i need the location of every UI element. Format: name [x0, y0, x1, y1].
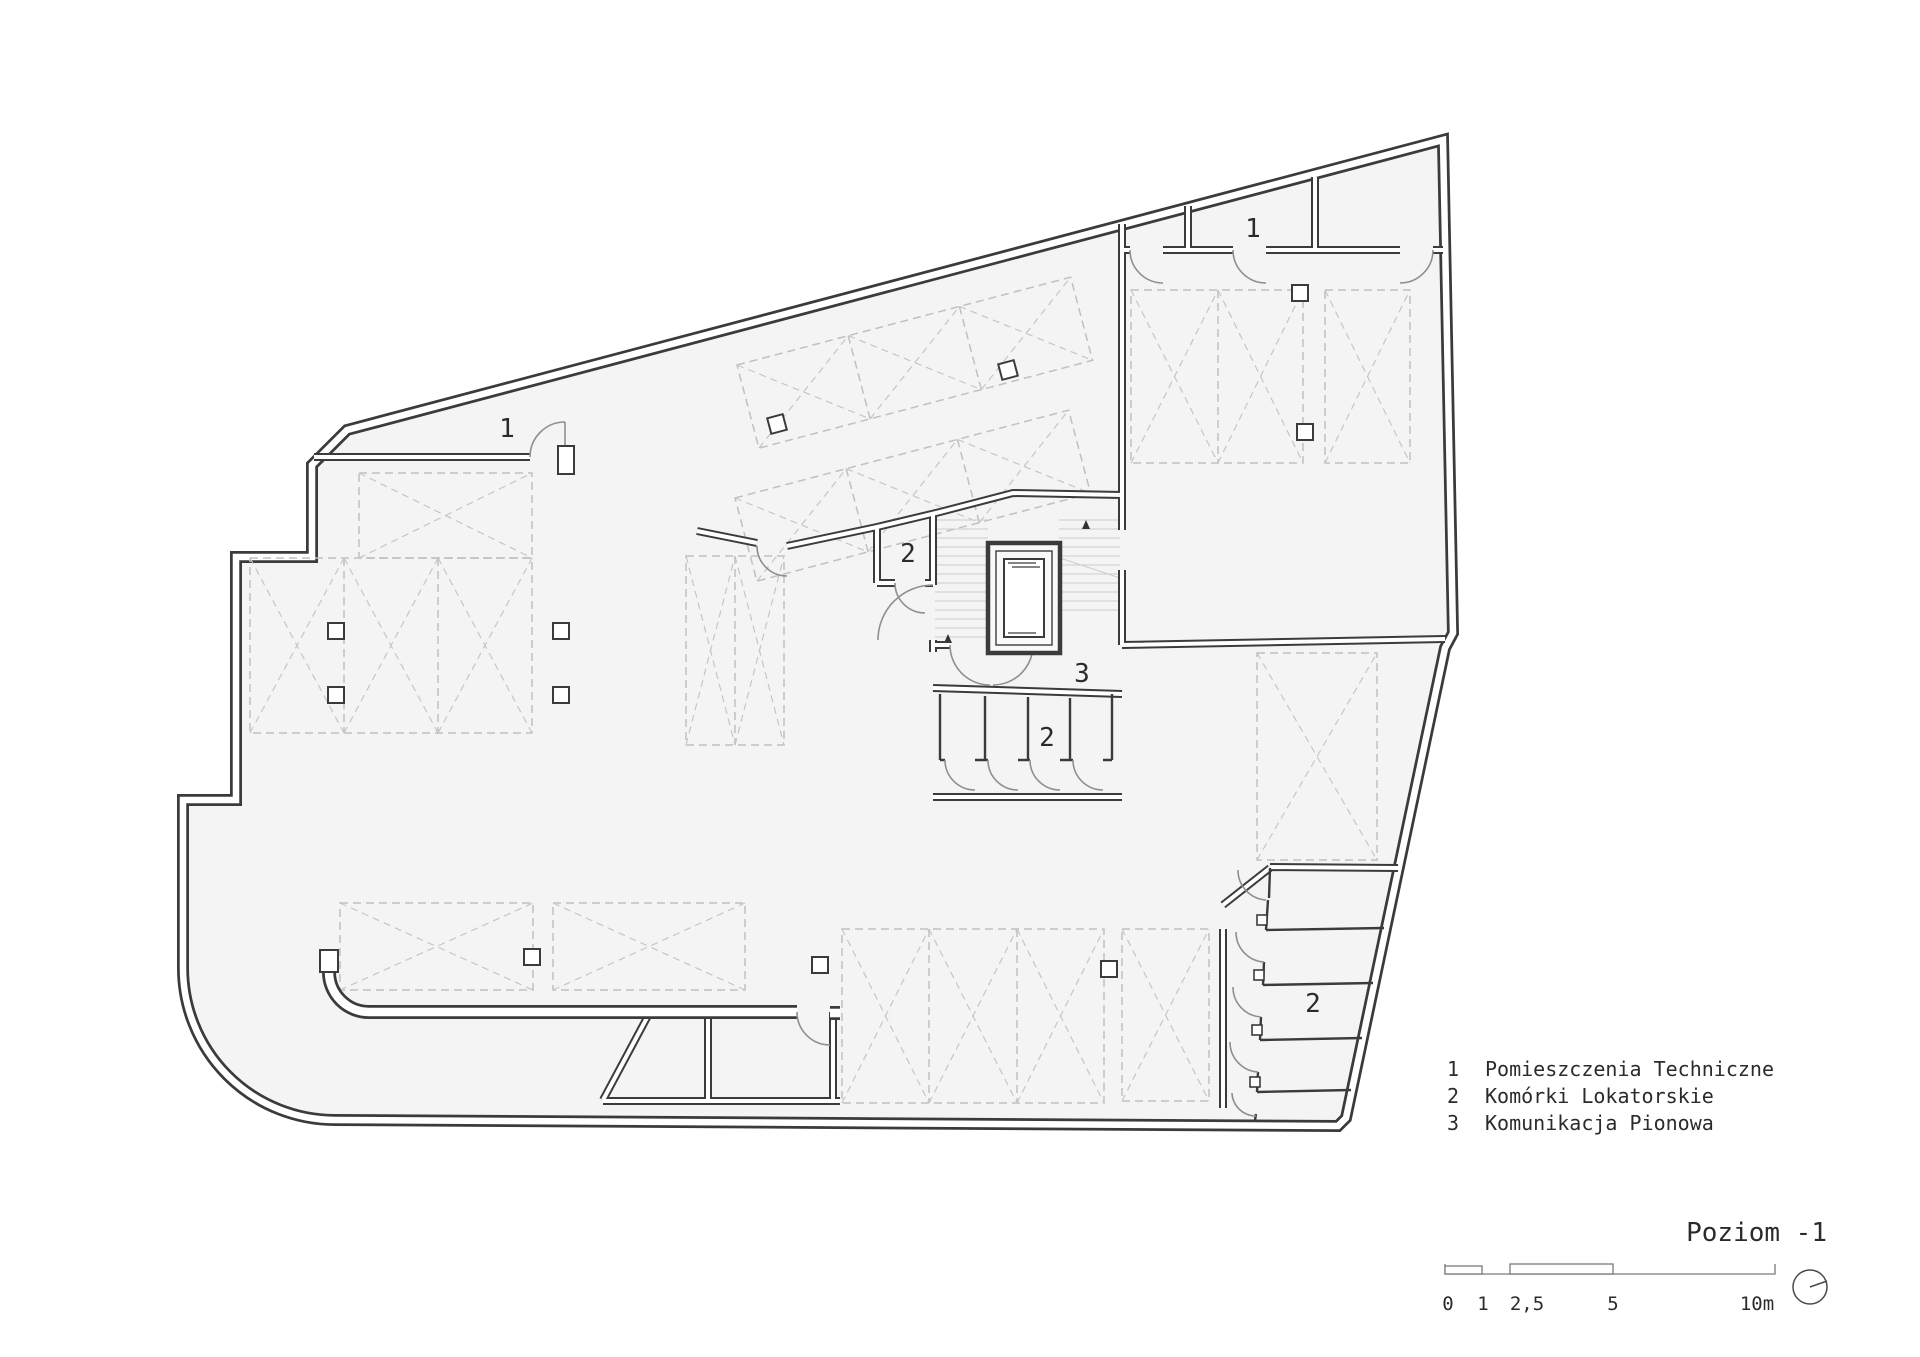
column — [553, 623, 569, 639]
legend-item-number: 2 — [1447, 1084, 1459, 1108]
scale-tick-label: 5 — [1607, 1293, 1618, 1315]
door-jamb — [1257, 915, 1267, 925]
column — [1292, 285, 1308, 301]
column — [328, 687, 344, 703]
room-label: 1 — [499, 414, 515, 444]
scale-bar: 0 1 2,5 5 10m — [1442, 1264, 1775, 1315]
column — [1101, 961, 1117, 977]
elevator-car — [1004, 559, 1044, 637]
legend-item-label: Komórki Lokatorskie — [1485, 1084, 1714, 1108]
column — [524, 949, 540, 965]
legend-item-number: 3 — [1447, 1111, 1459, 1135]
column — [328, 623, 344, 639]
column — [767, 414, 787, 434]
column — [1297, 424, 1313, 440]
door-jamb — [1252, 1025, 1262, 1035]
column — [320, 950, 338, 972]
scale-tick-label: 2,5 — [1510, 1293, 1544, 1315]
floor-plan-sheet: 1 1 2 3 2 2 1 Pomieszczenia Techniczne 2… — [0, 0, 1920, 1357]
scale-tick-label: 0 — [1442, 1293, 1453, 1315]
floor-plan-canvas: 1 1 2 3 2 2 1 Pomieszczenia Techniczne 2… — [0, 0, 1920, 1357]
door-jamb — [1250, 1077, 1260, 1087]
room-label: 1 — [1245, 214, 1261, 244]
room-label: 3 — [1074, 659, 1090, 689]
legend: 1 Pomieszczenia Techniczne 2 Komórki Lok… — [1447, 1057, 1774, 1135]
scale-tick-label: 1 — [1477, 1293, 1488, 1315]
door-jamb — [1254, 970, 1264, 980]
elevator — [988, 543, 1060, 653]
column — [998, 360, 1018, 380]
room-label: 2 — [1305, 989, 1321, 1019]
legend-item-number: 1 — [1447, 1057, 1459, 1081]
legend-item-label: Komunikacja Pionowa — [1485, 1111, 1714, 1135]
legend-item-label: Pomieszczenia Techniczne — [1485, 1057, 1774, 1081]
column — [812, 957, 828, 973]
column — [553, 687, 569, 703]
page-title: Poziom -1 — [1686, 1218, 1827, 1248]
scale-tick-label: 10m — [1740, 1293, 1774, 1315]
wall-pillar — [558, 446, 574, 474]
room-label: 2 — [900, 539, 916, 569]
room-label: 2 — [1039, 723, 1055, 753]
north-indicator-icon — [1793, 1270, 1827, 1304]
